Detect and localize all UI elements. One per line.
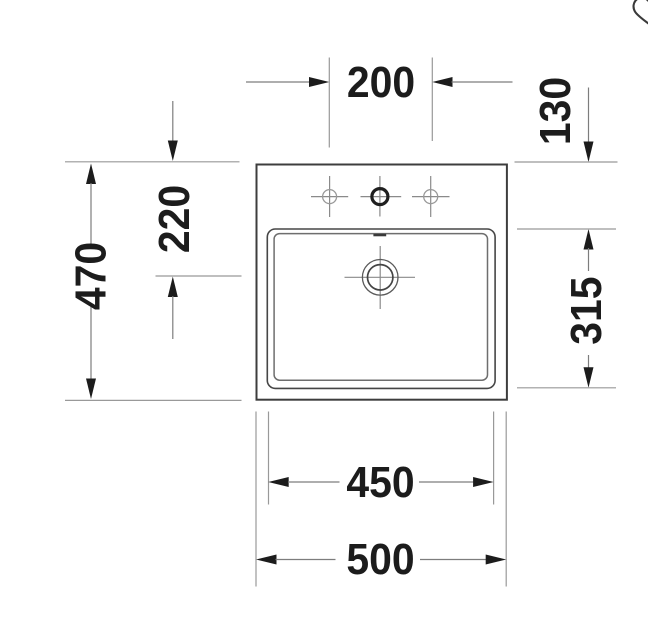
svg-text:315: 315 <box>563 276 612 344</box>
svg-text:500: 500 <box>346 535 414 584</box>
svg-text:450: 450 <box>346 459 414 508</box>
svg-text:130: 130 <box>532 77 581 145</box>
svg-text:220: 220 <box>151 185 200 253</box>
svg-text:200: 200 <box>347 59 415 108</box>
svg-text:470: 470 <box>67 242 116 310</box>
